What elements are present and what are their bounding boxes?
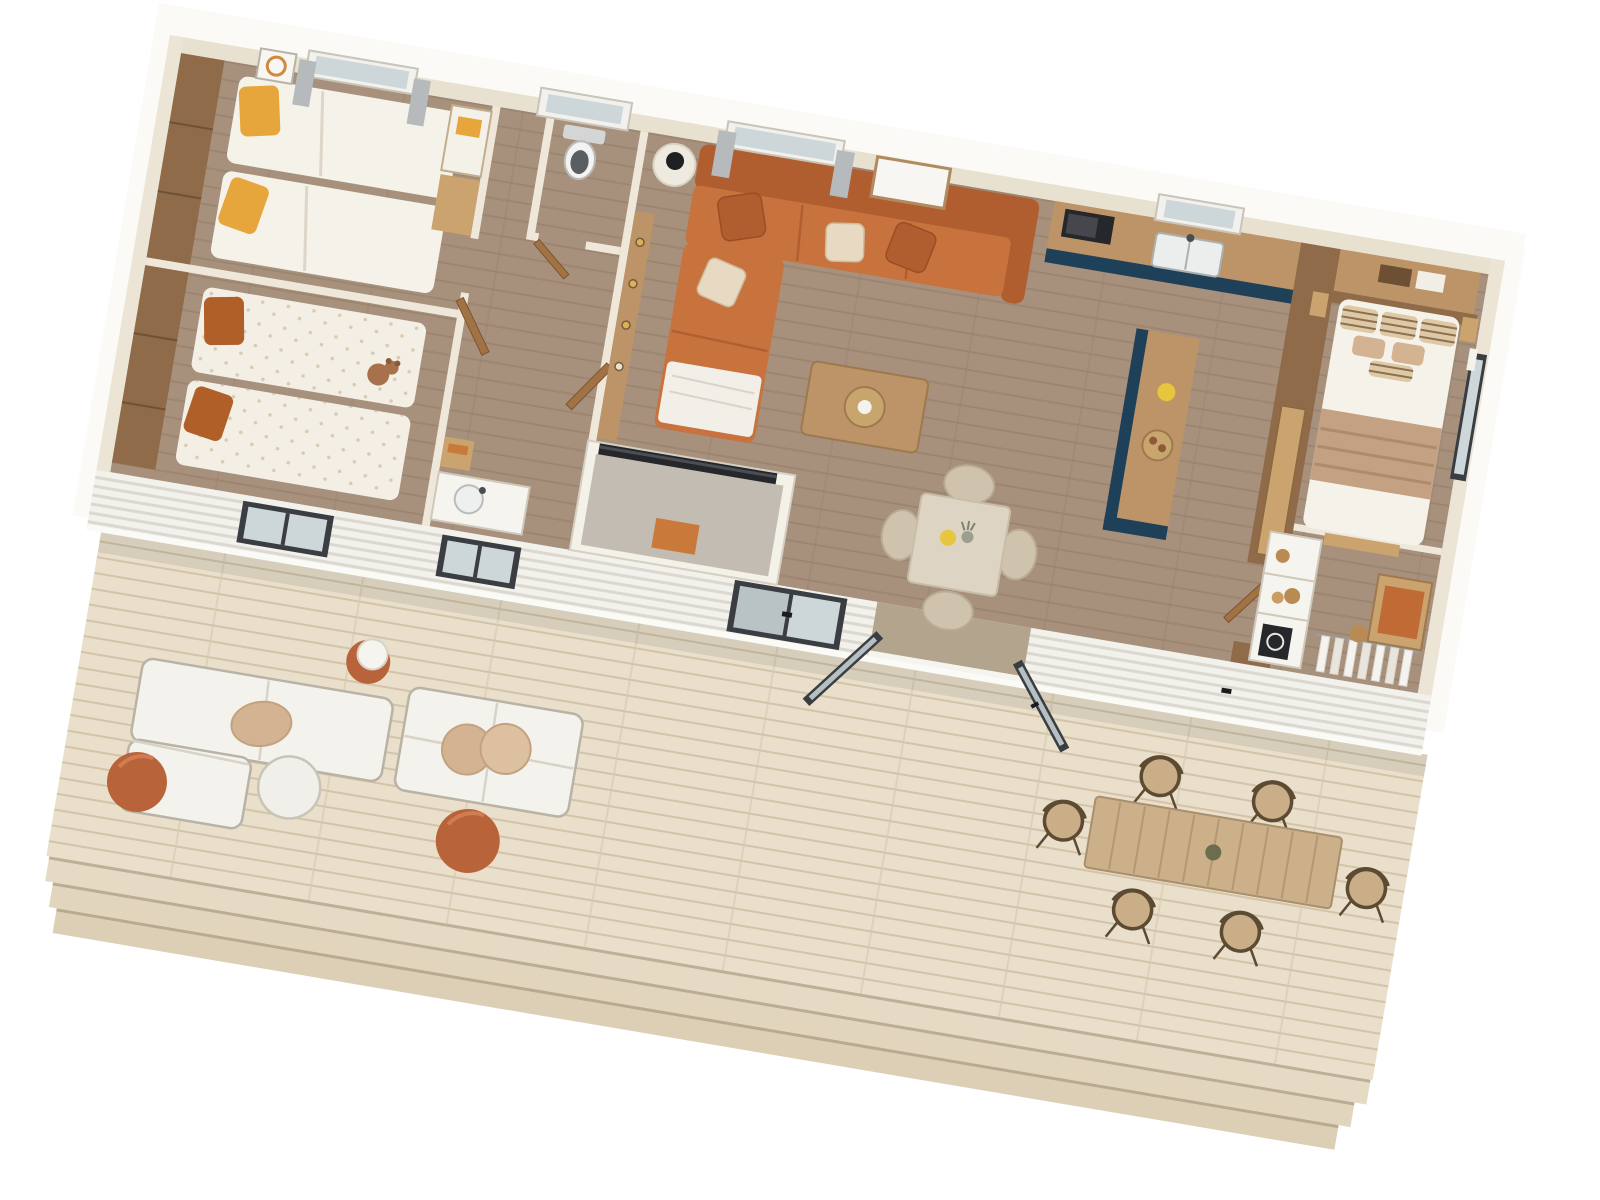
sofa-cushion-beige	[825, 223, 864, 262]
bed-1-pillow	[239, 85, 281, 137]
bath-shelf	[440, 436, 475, 471]
sofa-cushion-orange-1	[717, 192, 767, 242]
bed-3-pillow	[204, 297, 244, 345]
floorplan-3d-render	[0, 0, 1600, 1200]
speaker	[1258, 624, 1293, 661]
orange-pad	[1377, 585, 1424, 639]
wall-mirror-frame	[256, 48, 296, 84]
scene	[3, 3, 1527, 1156]
floorplan-svg	[0, 0, 1600, 1200]
dining-table	[907, 493, 1011, 597]
